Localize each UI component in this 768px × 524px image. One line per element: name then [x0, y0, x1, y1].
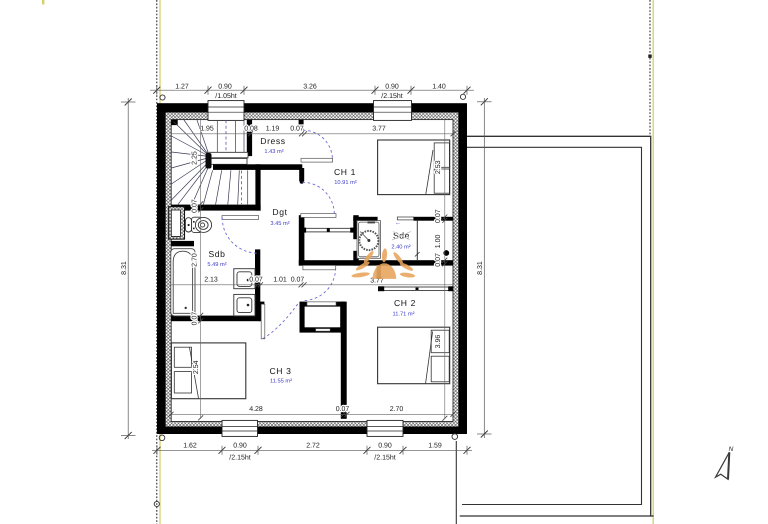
svg-text:2.40 m²: 2.40 m²: [391, 245, 410, 251]
svg-text:0.07: 0.07: [192, 312, 199, 326]
svg-text:1.43 m²: 1.43 m²: [264, 149, 283, 155]
svg-text:1.59: 1.59: [428, 443, 442, 450]
svg-text:2.25: 2.25: [192, 151, 199, 165]
svg-text:1.95: 1.95: [200, 126, 214, 133]
svg-text:3.96: 3.96: [435, 335, 442, 349]
svg-text:0.08: 0.08: [244, 126, 258, 133]
svg-text:/1.05ht: /1.05ht: [215, 92, 236, 100]
svg-text:CH 3: CH 3: [270, 366, 292, 376]
svg-text:2.13: 2.13: [204, 277, 218, 284]
svg-text:2.54: 2.54: [193, 360, 200, 374]
svg-text:1.19: 1.19: [266, 126, 280, 133]
svg-text:/2.15ht: /2.15ht: [229, 454, 250, 462]
svg-text:/2.15ht: /2.15ht: [374, 454, 395, 462]
svg-text:2.53: 2.53: [435, 160, 442, 174]
svg-text:0.07: 0.07: [336, 406, 350, 413]
svg-text:2.70: 2.70: [192, 253, 199, 267]
svg-text:Dress: Dress: [260, 136, 285, 146]
svg-text:0.90: 0.90: [233, 443, 247, 450]
svg-text:CH 2: CH 2: [394, 298, 416, 308]
svg-text:0.07: 0.07: [435, 253, 442, 267]
svg-text:3.77: 3.77: [372, 126, 386, 133]
svg-text:1.40: 1.40: [432, 84, 446, 91]
svg-text:0.90: 0.90: [385, 84, 399, 91]
svg-text:0.07: 0.07: [249, 277, 263, 284]
svg-text:0.90: 0.90: [378, 443, 392, 450]
svg-text:0.90: 0.90: [218, 84, 232, 91]
svg-text:1.00: 1.00: [435, 234, 442, 248]
svg-text:0.07: 0.07: [290, 126, 304, 133]
svg-text:CH 1: CH 1: [334, 167, 356, 177]
svg-text:N: N: [729, 446, 734, 453]
svg-text:3.26: 3.26: [303, 84, 317, 91]
svg-text:2.72: 2.72: [306, 443, 320, 450]
svg-text:0.07: 0.07: [192, 199, 199, 213]
svg-text:10.91 m²: 10.91 m²: [334, 180, 357, 186]
svg-text:4.28: 4.28: [249, 406, 263, 413]
svg-text:8.31: 8.31: [477, 261, 484, 275]
svg-text:5.49 m²: 5.49 m²: [207, 262, 226, 268]
svg-text:0.07: 0.07: [291, 277, 305, 284]
svg-text:Sdb: Sdb: [208, 249, 225, 259]
svg-text:1.27: 1.27: [175, 84, 189, 91]
svg-text:11.55 m²: 11.55 m²: [270, 379, 292, 385]
svg-text:1.01: 1.01: [273, 277, 287, 284]
svg-text:Dgt: Dgt: [272, 207, 287, 217]
svg-text:8.31: 8.31: [121, 261, 128, 275]
svg-text:11.71 m²: 11.71 m²: [392, 312, 414, 318]
svg-text:/2.15ht: /2.15ht: [381, 92, 402, 100]
svg-text:2.70: 2.70: [390, 406, 404, 413]
svg-text:←: ←: [395, 221, 401, 227]
svg-text:3.45 m²: 3.45 m²: [270, 221, 289, 227]
svg-text:1.62: 1.62: [183, 443, 197, 450]
svg-text:0.07: 0.07: [435, 209, 442, 223]
